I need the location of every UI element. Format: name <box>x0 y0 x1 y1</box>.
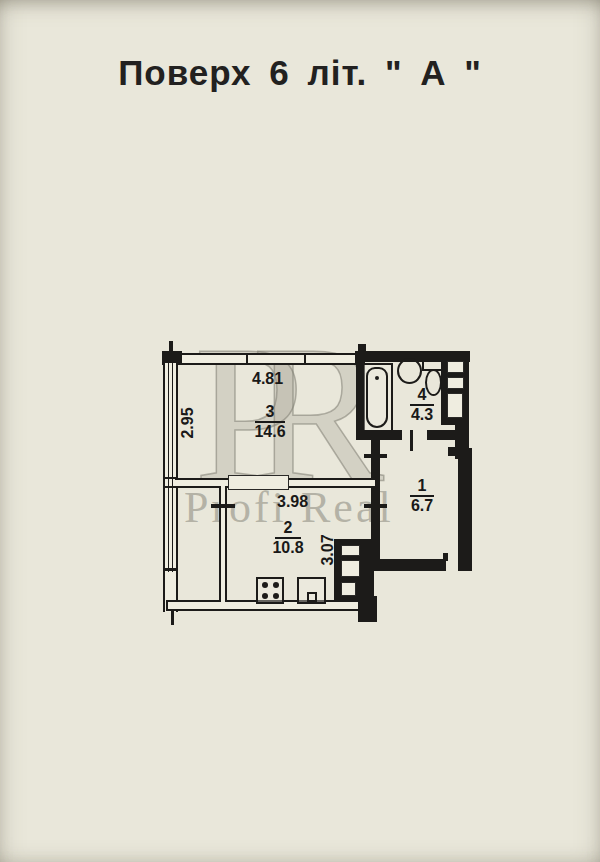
stove-burner-3 <box>262 593 268 599</box>
axis-tick-top-left <box>169 341 173 352</box>
room-4-number: 4 <box>418 388 427 402</box>
vent-shaft-bathroom-duct-2 <box>447 377 464 389</box>
room-3-number: 3 <box>266 405 275 419</box>
dim-room2-width: 3.98 <box>277 493 308 511</box>
room-label-2: 2 10.8 <box>268 521 308 555</box>
dim-room3-width: 4.81 <box>252 370 283 388</box>
stove-burner-2 <box>273 582 279 588</box>
wall-bathroom-bottom-right <box>427 430 466 440</box>
kitchen-door-mark <box>364 504 387 508</box>
room-2-number: 2 <box>284 521 293 535</box>
vent-shaft-bathroom-duct-1 <box>447 361 464 373</box>
stove-burner-1 <box>262 582 268 588</box>
vent-shaft-kitchen-duct-2 <box>341 560 360 577</box>
dim-room3-depth: 2.95 <box>179 401 197 445</box>
balcony-door-mark <box>211 504 235 508</box>
entrance-door-mark-left <box>443 553 448 561</box>
window-top-mullion-1 <box>246 353 248 365</box>
window-glass-lines <box>168 363 173 572</box>
vent-shaft-kitchen-duct-3 <box>341 582 356 596</box>
room-1-number: 1 <box>418 479 427 493</box>
scanned-floor-plan-page: Поверх 6 літ. " А " PR Profi Real <box>0 0 600 862</box>
axis-tick-bottom-left <box>171 611 174 625</box>
room-label-4: 4 4.3 <box>404 388 440 422</box>
window-top <box>180 353 357 365</box>
window-wall-left <box>163 361 178 574</box>
kitchen-sink-drain <box>307 592 317 602</box>
room-label-3: 3 14.6 <box>250 405 290 439</box>
axis-tick-right <box>448 447 457 456</box>
bathroom-door-mark <box>410 430 413 451</box>
window-left-divider-3 <box>163 568 178 571</box>
room-label-1: 1 6.7 <box>402 479 442 513</box>
room3-door-mark <box>364 454 387 458</box>
floor-plan: 4.81 2.95 3.98 3.07 3 14.6 4 4.3 1 6.7 2… <box>0 0 600 862</box>
room-3-area: 14.6 <box>254 424 285 439</box>
room-1-area: 6.7 <box>411 498 433 513</box>
vent-shaft-bathroom-duct-3 <box>447 393 463 418</box>
wall-right-lower <box>458 448 472 571</box>
bathtub-drain <box>375 376 379 380</box>
washbasin <box>397 358 422 384</box>
room-2-area: 10.8 <box>272 540 303 555</box>
dim-room2-depth: 3.07 <box>319 528 337 572</box>
stove-burner-4 <box>273 593 279 599</box>
room-4-area: 4.3 <box>411 407 433 422</box>
room3-kitchen-opening <box>228 475 289 490</box>
window-top-mullion-2 <box>304 353 306 365</box>
vent-shaft-kitchen-duct-1 <box>341 545 360 556</box>
stove <box>256 577 284 604</box>
